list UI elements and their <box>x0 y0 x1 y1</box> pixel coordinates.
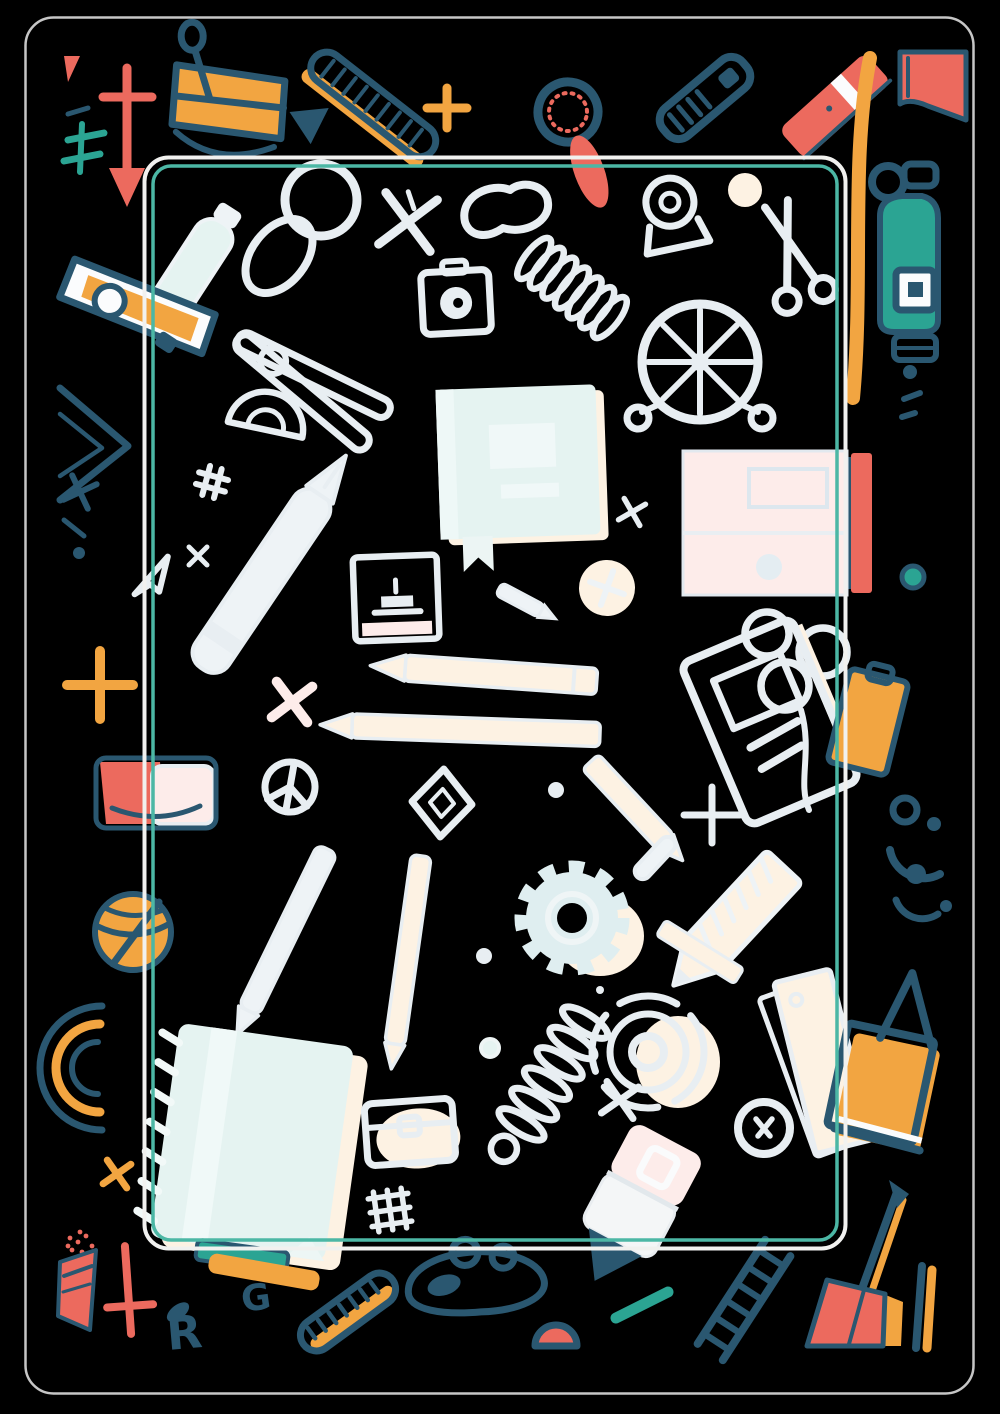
teal-dot <box>902 566 924 588</box>
grid-hash <box>367 1187 412 1232</box>
white-dot-1 <box>548 782 564 798</box>
mint-dot <box>481 1039 499 1057</box>
orange-basketball <box>95 894 171 970</box>
doodle-poster: G R <box>0 0 1000 1414</box>
navy-dot <box>73 547 85 559</box>
tiny-dot <box>596 986 604 994</box>
red-pencil-cup <box>96 758 216 828</box>
poster-canvas: G R <box>0 0 1000 1414</box>
navy-smile-arc <box>535 1325 577 1346</box>
white-dot-2 <box>476 948 492 964</box>
cream-circle <box>728 173 762 207</box>
